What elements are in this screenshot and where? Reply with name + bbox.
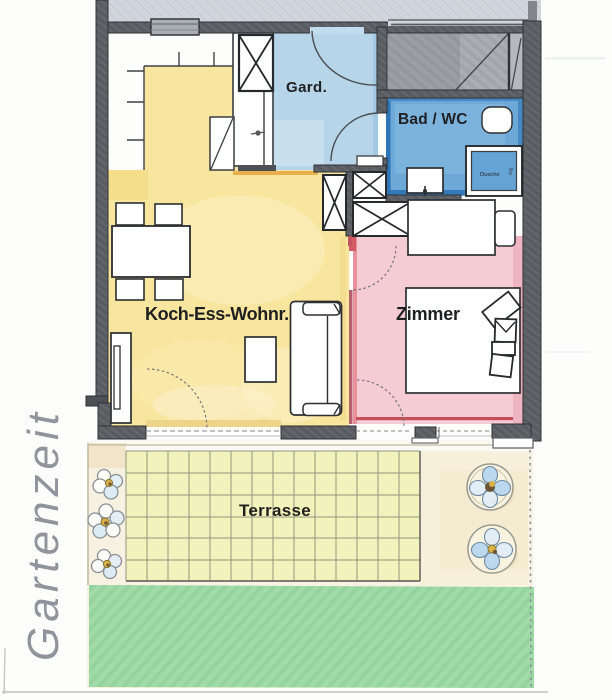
- svg-text:Bw: Bw: [507, 168, 513, 175]
- svg-text:Gartenzeit: Gartenzeit: [19, 408, 68, 661]
- svg-text:Dusche: Dusche: [480, 172, 500, 178]
- svg-text:Gard.: Gard.: [286, 79, 327, 96]
- svg-text:Bad / WC: Bad / WC: [398, 111, 468, 128]
- svg-text:Zimmer: Zimmer: [396, 304, 460, 324]
- svg-text:Terrasse: Terrasse: [239, 501, 311, 520]
- svg-text:Koch-Ess-Wohnr.: Koch-Ess-Wohnr.: [145, 304, 289, 324]
